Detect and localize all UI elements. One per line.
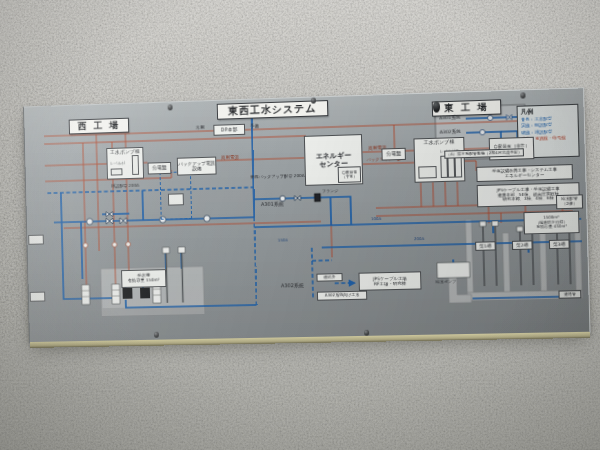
schematic-panel: 西 工 場 東西工水システム 東 工 場 凡例 青色：工水配管 実線：既設配管 … (23, 87, 591, 343)
valve-pit-box (168, 193, 184, 205)
west-switchboard-box: 分電盤 (148, 162, 172, 175)
west-pump-house-meter-1 (111, 168, 123, 175)
note-supply-piping: 給水配管 （2棟） (556, 194, 583, 209)
east-pump-house-unit-1 (418, 166, 437, 179)
self-generator-box: 自家発電 （非常） (338, 166, 361, 183)
label-reserve-line: 予備 (250, 123, 259, 128)
label-normal-line: 常用 (196, 125, 205, 130)
link-pipe-box: 連通管 (558, 290, 581, 299)
pipe-size-100a: 100A (371, 217, 381, 222)
supply-pump-label: 給水ポンプ (435, 280, 456, 285)
east-pump-house-unit-4 (454, 155, 462, 177)
tank-3-label: 第3槽 (549, 239, 570, 249)
screw-bottom-1 (154, 332, 159, 338)
a301-system-label: A301系統 (261, 201, 284, 207)
tank-2-label: 第2槽 (512, 240, 533, 250)
extension-pipe-label: 増設配管 200A (111, 184, 139, 190)
connect-valve-box: 連絡弁 (316, 273, 342, 282)
left-edge-box-2 (30, 292, 46, 302)
east-switchboard-box: 分電盤 (381, 148, 406, 161)
west-backup-power-box: バックアップ電源設備 (177, 157, 217, 176)
jps-destination-box: JPSケーブル工場 RF工場・研究棟 (358, 271, 421, 290)
note-power-improvement: 受電設備改善工事・システム工事 エネルギーセンター (476, 164, 573, 182)
detail-a301-label: A301系統 (439, 115, 460, 121)
pipe-size-150a: 150A (278, 238, 288, 243)
west-commercial-power-label: 商用電源 (221, 155, 239, 161)
photo-scene: 西 工 場 東西工水システム 東 工 場 凡例 青色：工水配管 実線：既設配管 … (0, 0, 600, 450)
flange-label: フランジ (322, 189, 338, 194)
dp-headquarters-box: DP本部 (213, 124, 245, 136)
a302-system-label: A302系統 (281, 283, 304, 289)
title-east-plant: 東 工 場 (432, 99, 502, 116)
left-edge-box-1 (28, 235, 44, 245)
east-tank-note-box: 1500m³ （構造防水仕様） 有効容量 450m³ (523, 211, 579, 235)
west-level-gauge-label: レベル計 (110, 161, 125, 166)
legend-title: 凡例 (521, 107, 575, 116)
pipe-size-200a: 200A (414, 237, 424, 242)
power-line-valves (83, 242, 131, 248)
detail-a302-label: A302系統 (440, 129, 461, 135)
west-tank-note-box: 受水槽 有効容量 150m³ (121, 269, 166, 288)
tank-1-label: 第1槽 (475, 241, 496, 251)
title-west-plant: 西 工 場 (69, 118, 130, 135)
a302-supply-box: A302系統向け工水 (317, 291, 367, 301)
supply-pump-unit-box (437, 262, 470, 278)
west-pump-house-meter-2 (132, 155, 139, 175)
